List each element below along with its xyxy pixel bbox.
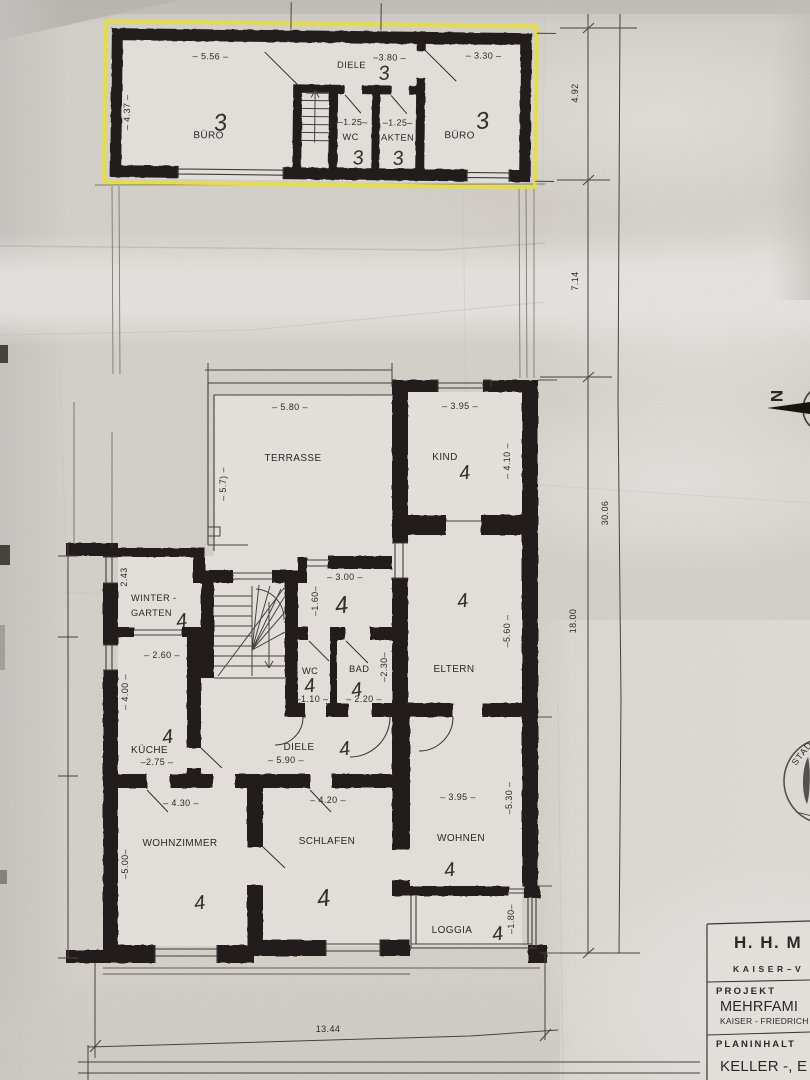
svg-text:2.43: 2.43 (119, 567, 129, 586)
svg-text:WC: WC (342, 132, 358, 142)
svg-text:KAISER - FRIEDRICH - S: KAISER - FRIEDRICH - S (720, 1016, 810, 1026)
svg-text:– 2.20 –: – 2.20 – (346, 694, 382, 704)
svg-text:LOGGIA: LOGGIA (432, 925, 473, 936)
svg-text:7.14: 7.14 (570, 271, 580, 290)
svg-text:BÜRO: BÜRO (444, 129, 475, 141)
svg-text:KAISER–V: KAISER–V (733, 964, 804, 974)
svg-text:PROJEKT: PROJEKT (716, 986, 776, 997)
svg-text:SCHLAFEN: SCHLAFEN (299, 836, 356, 847)
svg-text:– 4.20 –: – 4.20 – (310, 795, 346, 805)
svg-text:– 3.95 –: – 3.95 – (440, 792, 476, 802)
svg-text:MEHRFAMI: MEHRFAMI (720, 999, 798, 1015)
svg-text:WINTER -: WINTER - (131, 593, 177, 603)
svg-text:– 4.30 –: – 4.30 – (163, 798, 199, 808)
svg-text:– 3.00 –: – 3.00 – (327, 572, 363, 582)
svg-text:– 4.10 –: – 4.10 – (502, 443, 512, 479)
svg-text:13.44: 13.44 (316, 1024, 341, 1034)
svg-text:–1.10 –: –1.10 – (296, 694, 329, 704)
svg-text:– 3.30 –: – 3.30 – (466, 50, 502, 60)
svg-text:– 4.00 –: – 4.00 – (120, 674, 130, 710)
svg-text:WOHNEN: WOHNEN (437, 833, 485, 844)
svg-text:30.06: 30.06 (600, 501, 610, 526)
svg-text:–1.25–: –1.25– (338, 117, 368, 127)
svg-text:DIELE: DIELE (284, 742, 315, 753)
svg-text:–5.60 –: –5.60 – (502, 615, 512, 648)
svg-text:AKTEN: AKTEN (381, 132, 414, 142)
svg-text:–3.80 –: –3.80 – (373, 52, 406, 62)
svg-text:KIND: KIND (432, 452, 458, 463)
svg-text:– 5.80 –: – 5.80 – (272, 402, 308, 412)
svg-text:– 3.95 –: – 3.95 – (442, 401, 478, 411)
svg-text:ELTERN: ELTERN (433, 664, 474, 675)
svg-text:– 5.90 –: – 5.90 – (268, 755, 304, 765)
svg-text:– 2.60 –: – 2.60 – (144, 650, 180, 660)
svg-text:– 4.37 –: – 4.37 – (122, 94, 132, 130)
svg-text:GARTEN: GARTEN (131, 608, 172, 618)
svg-text:PLANINHALT: PLANINHALT (716, 1039, 796, 1050)
svg-text:–1.80–: –1.80– (506, 904, 516, 934)
svg-text:–5.00–: –5.00– (120, 849, 130, 879)
svg-text:TERRASSE: TERRASSE (264, 453, 321, 464)
svg-text:4.92: 4.92 (570, 83, 580, 102)
svg-text:H. H. M: H. H. M (734, 933, 802, 952)
svg-text:N: N (767, 390, 786, 402)
svg-text:–1.25–: –1.25– (383, 117, 413, 127)
svg-text:–1.60–: –1.60– (310, 586, 320, 616)
svg-text:KELLER -, E: KELLER -, E (720, 1058, 807, 1075)
svg-text:– 5.7) –: – 5.7) – (218, 467, 228, 501)
svg-text:DIELE: DIELE (337, 60, 366, 70)
svg-text:–2.75 –: –2.75 – (141, 757, 174, 767)
svg-text:–2.30–: –2.30– (379, 652, 389, 682)
svg-text:–5.30 –: –5.30 – (504, 782, 514, 815)
svg-text:18.00: 18.00 (568, 609, 578, 634)
svg-text:– 5.56 –: – 5.56 – (193, 51, 229, 61)
svg-text:WOHNZIMMER: WOHNZIMMER (142, 838, 217, 849)
svg-text:BAD: BAD (349, 664, 369, 674)
